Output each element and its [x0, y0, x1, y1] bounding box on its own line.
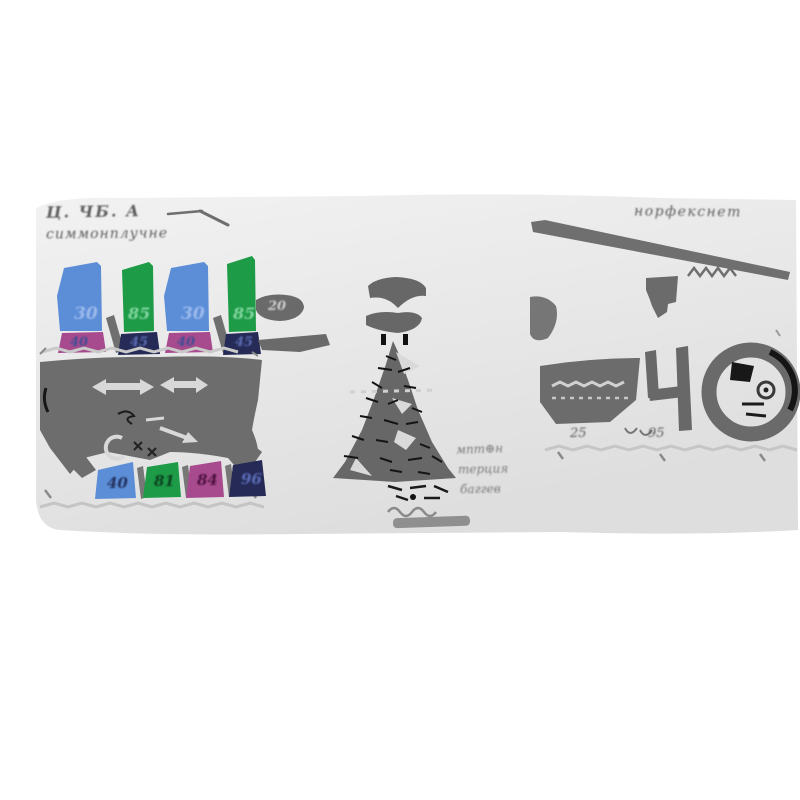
row-magenta-value: 84	[197, 473, 218, 488]
post-left	[381, 334, 386, 345]
middle-note-line3: баггев	[460, 483, 501, 496]
light-dash	[146, 418, 164, 420]
middle-note-line2: терция	[458, 463, 508, 476]
row-blue-value: 40	[107, 476, 128, 491]
pair2-navy-value: 45	[235, 336, 253, 349]
pair1-green-value: 85	[128, 306, 150, 322]
left-title-line1: Ц. ЧБ. А	[46, 203, 141, 221]
pair2-magenta-value: 40	[177, 336, 195, 349]
pair2-green-value: 85	[233, 306, 255, 322]
sketch-shapes	[0, 0, 800, 800]
row-green-value: 81	[154, 474, 175, 489]
middle-note-line1: мпт⊕н	[456, 442, 503, 456]
middle-link-value: 20	[268, 300, 286, 313]
left-title-line2: симмонплучне	[46, 226, 168, 241]
pair2-blue-value: 30	[181, 306, 205, 323]
pair1-blue-value: 30	[74, 306, 98, 323]
post-right	[403, 334, 408, 345]
pair1-navy-value: 45	[130, 336, 148, 349]
pair1-magenta-value: 40	[70, 336, 88, 349]
right-value-right: 95	[648, 427, 665, 440]
right-title: норфекснет	[634, 205, 742, 220]
row-navy-value: 96	[241, 472, 262, 487]
sketch-figure: Ц. ЧБ. А симмонплучне 30 40 85 45 30 40 …	[0, 0, 800, 800]
right-value-left: 25	[570, 427, 587, 440]
